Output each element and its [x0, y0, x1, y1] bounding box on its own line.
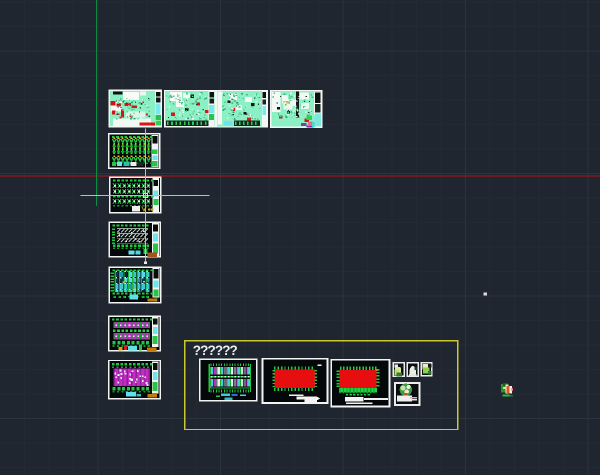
- svg-text:??????: ??????: [193, 343, 238, 358]
